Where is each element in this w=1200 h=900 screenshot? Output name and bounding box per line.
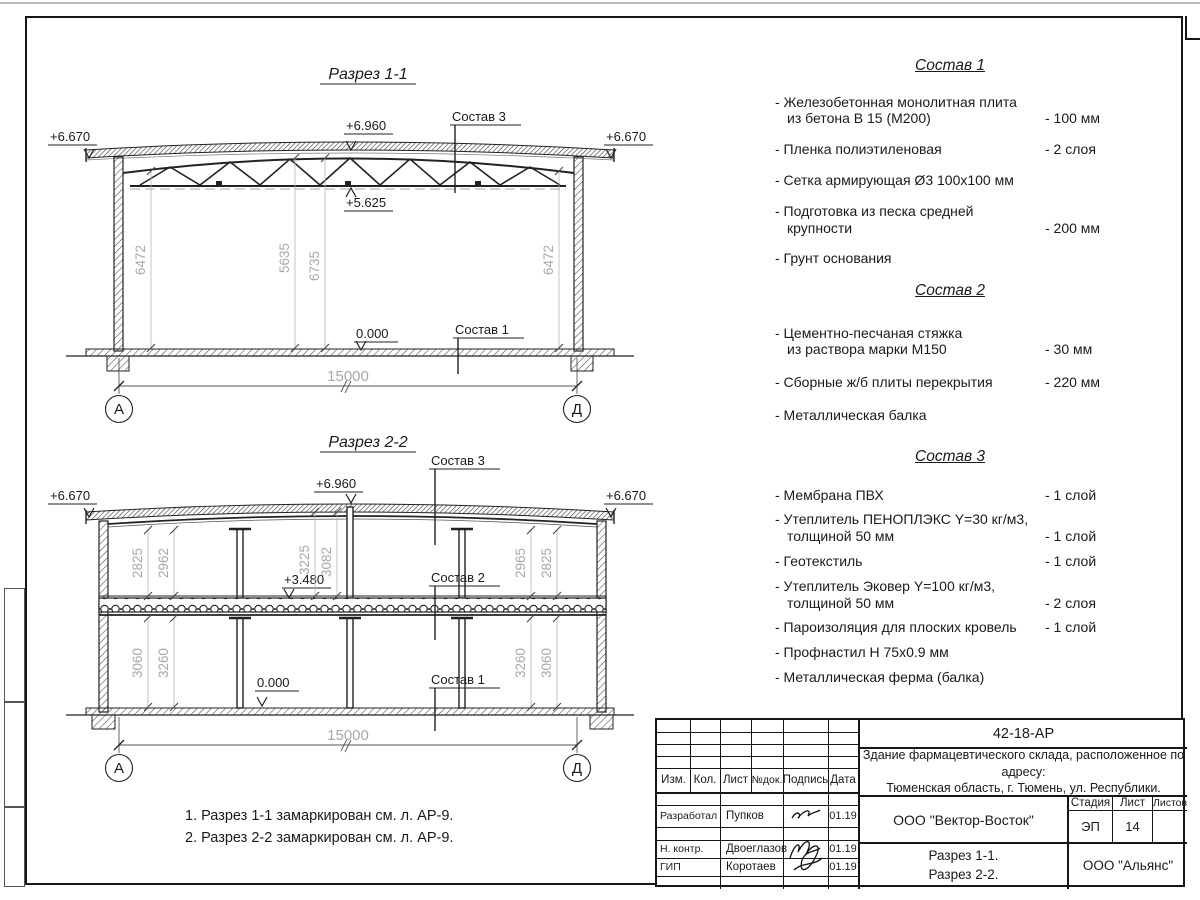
list-item: - Профнастил Н 75х0.9 мм: [765, 644, 1200, 661]
dim-15000: 15000: [327, 368, 369, 385]
truss-web: [140, 158, 560, 185]
composition-2-title: Состав 2: [765, 282, 1135, 301]
span-dim: 15000: [114, 358, 582, 394]
axis-bubbles-2: А Д: [106, 755, 591, 782]
dim-2962: 2962: [156, 548, 171, 578]
axis-bubbles: А Д: [106, 396, 591, 423]
foundation-left: [107, 356, 129, 371]
truss-clip: [475, 181, 481, 186]
elevation-zero-2: 0.000: [255, 675, 299, 706]
item-name: - Утеплитель Эковер Y=100 кг/м3, толщино…: [775, 578, 1045, 612]
elevation-zero-text: 0.000: [356, 326, 389, 341]
doc-number: 42-18-АР: [860, 720, 1187, 747]
row2-date: 01.19: [828, 840, 858, 858]
dim-3260-l: 3260: [156, 648, 171, 678]
item-name: - Металлическая ферма (балка): [775, 669, 1045, 686]
signature-icon: [784, 800, 828, 886]
foundation-right-2: [590, 715, 613, 729]
callout-sostav1-2-text: Состав 1: [431, 672, 485, 687]
row3-name: Коротаев: [723, 858, 783, 876]
section1-title: Разрез 1-1: [328, 66, 407, 83]
callout-sostav1-text: Состав 1: [455, 322, 509, 337]
callout-sostav3-2-text: Состав 3: [431, 453, 485, 468]
item-name: - Цементно-песчаная стяжка из раствора м…: [775, 325, 1045, 359]
item-value: - 2 слоя: [1045, 595, 1200, 612]
note-line-1: 1. Разрез 1-1 замаркирован см. л. АР-9.: [185, 806, 453, 828]
item-name: - Пленка полиэтиленовая: [775, 141, 1045, 158]
list-item: - Железобетонная монолитная плита из бет…: [765, 94, 1200, 128]
lower-columns: [229, 618, 473, 708]
item-name: - Сборные ж/б плиты перекрытия: [775, 374, 1045, 391]
composition-3-title: Состав 3: [765, 448, 1135, 467]
axis-d-2: Д: [572, 760, 582, 777]
elevation-left-2-text: +6.670: [50, 488, 90, 503]
elevation-chord: +5.625: [344, 188, 393, 211]
floor-slab: [86, 349, 614, 356]
dim-3260-r: 3260: [513, 648, 528, 678]
item-name: - Мембрана ПВХ: [775, 487, 1045, 504]
item-name: - Сетка армирующая Ø3 100х100 мм: [775, 172, 1045, 189]
item-name: - Профнастил Н 75х0.9 мм: [775, 644, 1045, 661]
sheet-number: 14: [1113, 810, 1152, 842]
wall-left: [99, 521, 108, 712]
contractor-name: ООО "Альянс": [1069, 842, 1187, 889]
dim-6735: 6735: [307, 251, 322, 281]
sheets-total: [1153, 810, 1187, 842]
col-header-data: Дата: [828, 768, 858, 792]
callout-sostav3-text: Состав 3: [452, 109, 506, 124]
elevation-chord-text: +5.625: [346, 195, 386, 210]
axis-d: Д: [572, 401, 582, 418]
title-block: Изм. Кол. Лист №док. Подпись Дата Разраб…: [655, 718, 1185, 887]
list-item: - Цементно-песчаная стяжка из раствора м…: [765, 325, 1200, 359]
list-item: - Металлическая ферма (балка): [765, 669, 1200, 686]
col-header-podpis: Подпись: [783, 768, 828, 792]
row1-date: 01.19: [828, 805, 858, 827]
foundation-right: [571, 356, 593, 371]
list-item: - Пароизоляция для плоских кровель- 1 сл…: [765, 619, 1200, 636]
list-item: - Утеплитель ПЕНОПЛЭКС Y=30 кг/м3, толщи…: [765, 511, 1200, 545]
elevation-left-text: +6.670: [50, 129, 90, 144]
item-value: - 2 слоя: [1045, 141, 1200, 158]
object-description: Здание фармацевтического склада, располо…: [860, 749, 1187, 795]
truss-clip: [216, 181, 222, 186]
list-item: - Пленка полиэтиленовая- 2 слоя: [765, 141, 1200, 158]
col-header-izm: Изм.: [657, 768, 690, 792]
dim-3225: 3225: [297, 545, 312, 575]
item-value: - 1 слой: [1045, 487, 1200, 504]
stage-label: Стадия: [1069, 795, 1112, 810]
dim-15000-2: 15000: [327, 727, 369, 744]
section-1-1: Разрез 1-1 +6.670 +6.670: [48, 66, 653, 423]
dim-3060-r: 3060: [539, 648, 554, 678]
col-header-kol: Кол.: [690, 768, 720, 792]
wall-right: [597, 521, 606, 712]
row1-role: Разработал: [657, 805, 720, 827]
composition-3: Состав 3 - Мембрана ПВХ- 1 слой - Утепли…: [765, 448, 1200, 694]
item-value: - 220 мм: [1045, 374, 1200, 391]
axis-a: А: [114, 401, 124, 418]
section-2-2: Разрез 2-2: [48, 434, 653, 782]
row2-name: Двоеглазов: [723, 840, 783, 858]
truss-top-chord: [123, 159, 574, 174]
item-name: - Пароизоляция для плоских кровель: [775, 619, 1045, 636]
sheets-label: Листов: [1153, 795, 1187, 810]
elevation-ridge-2: +6.960: [314, 476, 363, 503]
axis-a-2: А: [114, 760, 124, 777]
list-item: - Металлическая балка: [765, 407, 1200, 424]
dim-5635: 5635: [277, 243, 292, 273]
dim-6472-right: 6472: [541, 245, 556, 275]
item-name: - Утеплитель ПЕНОПЛЭКС Y=30 кг/м3, толщи…: [775, 511, 1045, 545]
composition-2: Состав 2 - Цементно-песчаная стяжка из р…: [765, 282, 1200, 440]
span-dim-2: 15000: [114, 717, 582, 753]
item-name: - Грунт основания: [775, 250, 1045, 267]
col-header-list: Лист: [720, 768, 751, 792]
truss-clip: [345, 181, 351, 186]
row1-name: Пупков: [723, 805, 783, 827]
item-value: - 100 мм: [1045, 110, 1200, 127]
elevation-zero: 0.000: [354, 326, 398, 350]
list-item: - Геотекстиль- 1 слой: [765, 553, 1200, 570]
dim-2825-r: 2825: [539, 548, 554, 578]
callout-sostav2-text: Состав 2: [431, 570, 485, 585]
item-name: - Подготовка из песка средней крупности: [775, 203, 1045, 237]
list-item: - Подготовка из песка средней крупности-…: [765, 203, 1200, 237]
callout-sostav1: Состав 1: [453, 322, 524, 374]
composition-1: Состав 1 - Железобетонная монолитная пли…: [765, 57, 1200, 281]
list-item: - Грунт основания: [765, 250, 1200, 267]
sheet-label: Лист: [1113, 795, 1152, 810]
dim-2965: 2965: [513, 548, 528, 578]
item-value: - 1 слой: [1045, 553, 1200, 570]
notes: 1. Разрез 1-1 замаркирован см. л. АР-9. …: [185, 806, 453, 850]
column-left: [114, 157, 123, 351]
foundation-left-2: [92, 715, 115, 729]
elevation-ridge-2-text: +6.960: [316, 476, 356, 491]
item-value: - 1 слой: [1045, 619, 1200, 636]
row3-date: 01.19: [828, 858, 858, 876]
company-name: ООО "Вектор-Восток": [860, 797, 1067, 842]
section2-title: Разрез 2-2: [328, 434, 407, 451]
composition-1-title: Состав 1: [765, 57, 1135, 76]
sheet-content: Разрез 1-1. Разрез 2-2.: [860, 842, 1067, 889]
item-value: - 1 слой: [1045, 528, 1200, 545]
item-name: - Металлическая балка: [775, 407, 1045, 424]
stage-value: ЭП: [1069, 810, 1112, 842]
column-right: [574, 157, 583, 351]
row3-role: ГИП: [657, 858, 720, 876]
floor-slab-2: [86, 708, 614, 715]
elevation-ridge-text: +6.960: [346, 118, 386, 133]
row2-role: Н. контр.: [657, 840, 720, 858]
item-name: - Железобетонная монолитная плита из бет…: [775, 94, 1045, 128]
dim-3060-l: 3060: [130, 648, 145, 678]
elevation-right-text: +6.670: [606, 129, 646, 144]
elevation-zero-2-text: 0.000: [257, 675, 290, 690]
roof-band: [86, 142, 614, 158]
dim-2825-l: 2825: [130, 548, 145, 578]
note-line-2: 2. Разрез 2-2 замаркирован см. л. АР-9.: [185, 828, 453, 850]
list-item: - Сетка армирующая Ø3 100х100 мм: [765, 172, 1200, 189]
col-header-ndok: №док.: [751, 768, 783, 792]
item-value: - 30 мм: [1045, 341, 1200, 358]
item-value: - 200 мм: [1045, 220, 1200, 237]
item-name: - Геотекстиль: [775, 553, 1045, 570]
dim-6472-left: 6472: [133, 245, 148, 275]
list-item: - Мембрана ПВХ- 1 слой: [765, 487, 1200, 504]
elevation-right-2-text: +6.670: [606, 488, 646, 503]
list-item: - Утеплитель Эковер Y=100 кг/м3, толщино…: [765, 578, 1200, 612]
list-item: - Сборные ж/б плиты перекрытия- 220 мм: [765, 374, 1200, 391]
dim-3082: 3082: [319, 547, 334, 577]
hollow-core-slab: [99, 598, 606, 612]
